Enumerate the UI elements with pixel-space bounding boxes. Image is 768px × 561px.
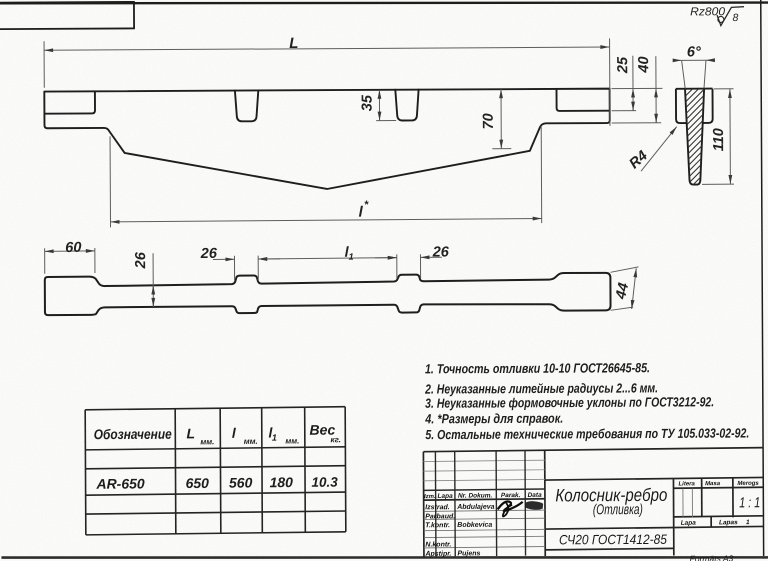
svg-text:(Отливка): (Отливка)	[593, 502, 643, 518]
svg-text:Bobkevica: Bobkevica	[457, 522, 492, 529]
svg-text:35: 35	[360, 94, 376, 111]
svg-text:Nr. Dokum.: Nr. Dokum.	[458, 492, 493, 499]
svg-text:кг.: кг.	[330, 435, 341, 444]
svg-text:AR-650: AR-650	[95, 475, 145, 491]
svg-text:СЧ20 ГОСТ1412-85: СЧ20 ГОСТ1412-85	[559, 532, 668, 548]
svg-text:Rz800: Rz800	[690, 6, 726, 18]
svg-text:Data: Data	[528, 492, 543, 499]
svg-text:560: 560	[229, 474, 253, 490]
svg-text:44: 44	[613, 281, 632, 301]
svg-text:Masa: Masa	[705, 481, 721, 487]
svg-text:Pujens: Pujens	[457, 550, 480, 557]
svg-text:Izstrad.: Izstrad.	[425, 504, 450, 511]
svg-text:26: 26	[432, 244, 450, 260]
svg-text:L: L	[186, 425, 195, 441]
svg-text:5. Остальные технические требо: 5. Остальные технические требования по Т…	[425, 425, 749, 442]
svg-text:L: L	[289, 35, 298, 52]
svg-text:1 : 1: 1 : 1	[739, 495, 760, 511]
svg-text:Lapa: Lapa	[438, 493, 454, 500]
svg-text:Lapa: Lapa	[681, 520, 697, 527]
svg-text:8: 8	[732, 12, 738, 24]
svg-text:40: 40	[636, 56, 652, 73]
svg-text:N.kontr.: N.kontr.	[425, 541, 451, 548]
svg-text:6°: 6°	[687, 44, 701, 60]
svg-text:Litera: Litera	[678, 481, 695, 487]
svg-text:мм.: мм.	[285, 436, 299, 445]
svg-text:T.kontr.: T.kontr.	[425, 522, 450, 529]
svg-text:26: 26	[200, 246, 218, 262]
svg-text:Formāts A3: Formāts A3	[690, 553, 734, 561]
svg-text:Izm.: Izm.	[424, 494, 436, 500]
svg-text:1. Точность отливки 10-10 ГОСТ: 1. Точность отливки 10-10 ГОСТ26645-85.	[425, 360, 650, 376]
svg-text:60: 60	[65, 240, 81, 256]
svg-text:110: 110	[711, 128, 727, 151]
svg-text:1: 1	[746, 519, 750, 526]
svg-text:180: 180	[270, 474, 294, 490]
svg-text:1: 1	[272, 433, 277, 443]
svg-text:мм.: мм.	[200, 437, 214, 446]
svg-text:4. *Размеры для справок.: 4. *Размеры для справок.	[424, 411, 563, 427]
svg-text:мм.: мм.	[244, 437, 258, 446]
svg-text:1: 1	[349, 252, 354, 262]
svg-text:26: 26	[133, 251, 149, 269]
svg-text:Apstipr.: Apstipr.	[424, 551, 451, 558]
svg-text:10.3: 10.3	[311, 475, 338, 490]
svg-text:25: 25	[615, 56, 631, 74]
svg-text:Lapas: Lapas	[719, 519, 738, 526]
svg-text:Merogs: Merogs	[737, 481, 759, 487]
svg-text:3. Неуказанные формовочные укл: 3. Неуказанные формовочные уклоны по ГОС…	[425, 394, 714, 411]
svg-text:650: 650	[186, 475, 210, 491]
svg-text:70: 70	[481, 113, 497, 129]
svg-text:Parbaud.: Parbaud.	[425, 513, 455, 520]
svg-text:Parak.: Parak.	[501, 492, 521, 499]
svg-text:Abdulajeva: Abdulajeva	[456, 504, 494, 511]
svg-text:Обозначение: Обозначение	[94, 426, 172, 442]
